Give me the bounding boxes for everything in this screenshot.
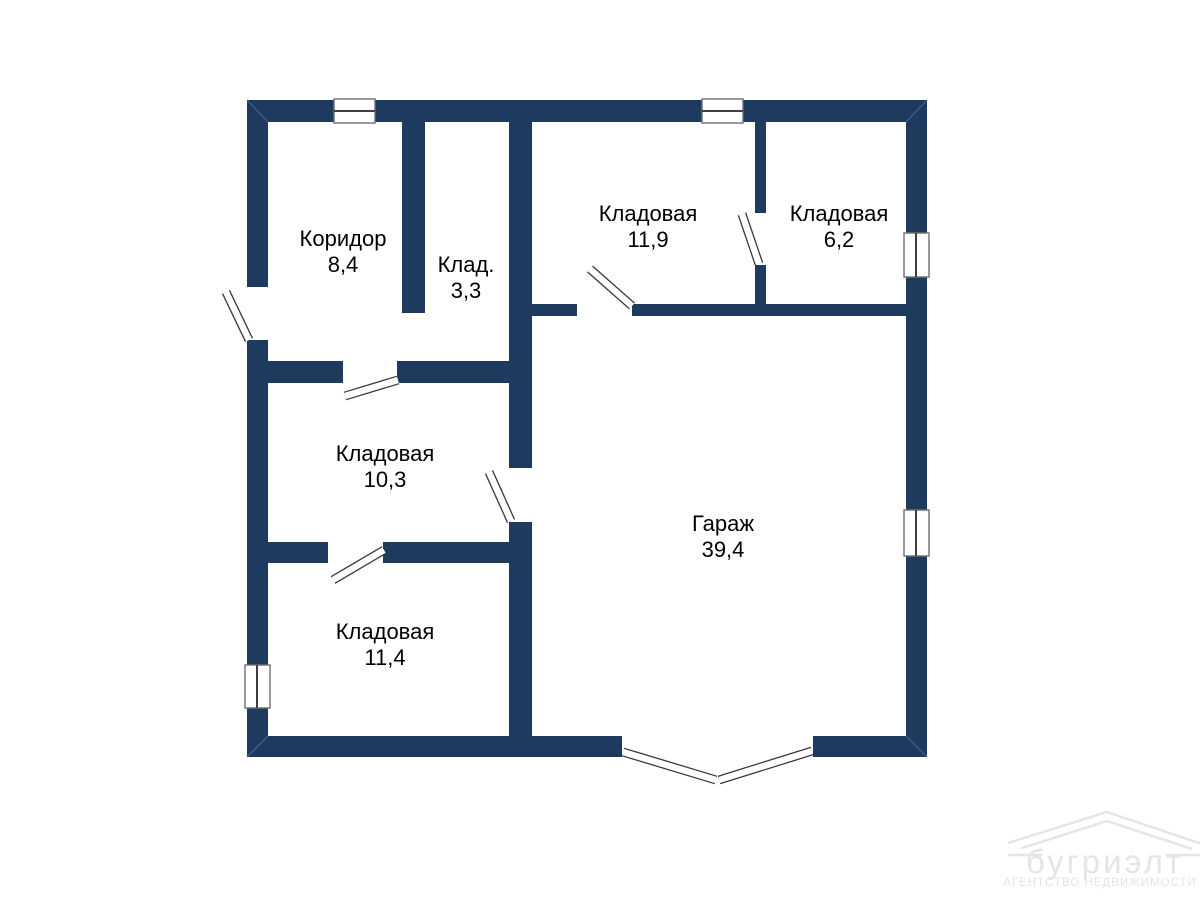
watermark-brand: бугриэлт (1026, 843, 1184, 880)
room-label: Клад. 3,3 (438, 252, 495, 303)
room-name: Гараж (692, 511, 754, 536)
wall-segment (247, 736, 622, 757)
window-symbol (702, 99, 743, 123)
wall-segment (906, 100, 927, 233)
wall-segment (375, 100, 702, 122)
wall-segment (397, 361, 509, 383)
wall-segment (402, 122, 425, 313)
wall-segment (906, 556, 927, 757)
door-leaf (345, 380, 398, 396)
room-label: Кладовая 10,3 (336, 441, 435, 492)
room-area: 11,4 (364, 645, 405, 670)
room-name: Клад. (438, 252, 495, 277)
floor-plan-canvas: Коридор 8,4 Клад. 3,3 Кладовая 11,9 Клад… (0, 0, 1200, 900)
window-symbol (334, 99, 375, 123)
room-area: 8,4 (328, 252, 359, 277)
watermark-tagline: АГЕНТСТВО НЕДВИЖИМОСТИ (1003, 877, 1197, 889)
door-leaf (333, 550, 384, 580)
wall-segment (247, 100, 268, 287)
wall-segment (755, 122, 766, 213)
floor-plan-page: Коридор 8,4 Клад. 3,3 Кладовая 11,9 Клад… (0, 0, 1200, 900)
wall-segment (268, 542, 328, 563)
wall-segment (906, 277, 927, 510)
wall-segment (268, 361, 343, 383)
window-symbol (904, 233, 929, 277)
room-area: 39,4 (702, 537, 745, 562)
window-symbol (904, 510, 929, 556)
wall-segment (509, 522, 532, 736)
room-label: Гараж 39,4 (692, 511, 754, 562)
watermark-logo: бугриэлт АГЕНТСТВО НЕДВИЖИМОСТИ (1003, 812, 1200, 889)
wall-segment (247, 340, 268, 665)
wall-segment (632, 304, 906, 316)
room-label: Коридор 8,4 (300, 226, 387, 277)
room-area: 6,2 (824, 227, 855, 252)
roof-outline-icon (1008, 812, 1200, 845)
room-label: Кладовая 11,4 (336, 619, 435, 670)
exterior-walls (247, 100, 927, 757)
windows (245, 99, 929, 708)
door-leaf (489, 472, 511, 521)
room-area: 3,3 (451, 278, 482, 303)
room-area: 10,3 (364, 467, 407, 492)
room-label: Кладовая 11,9 (599, 201, 698, 252)
room-name: Кладовая (790, 201, 889, 226)
room-label: Кладовая 6,2 (790, 201, 889, 252)
door-leaf (719, 751, 812, 780)
room-name: Коридор (300, 226, 387, 251)
door-leaf (226, 292, 249, 340)
room-name: Кладовая (336, 619, 435, 644)
wall-segment (383, 542, 509, 563)
door-leaf (623, 752, 716, 780)
door-leaf (742, 214, 759, 264)
door-leaf (590, 269, 632, 306)
wall-segment (509, 122, 532, 468)
room-area: 11,9 (627, 227, 668, 252)
wall-segment (532, 304, 577, 316)
room-name: Кладовая (336, 441, 435, 466)
window-symbol (245, 665, 270, 708)
wall-segment (743, 100, 927, 122)
room-name: Кладовая (599, 201, 698, 226)
